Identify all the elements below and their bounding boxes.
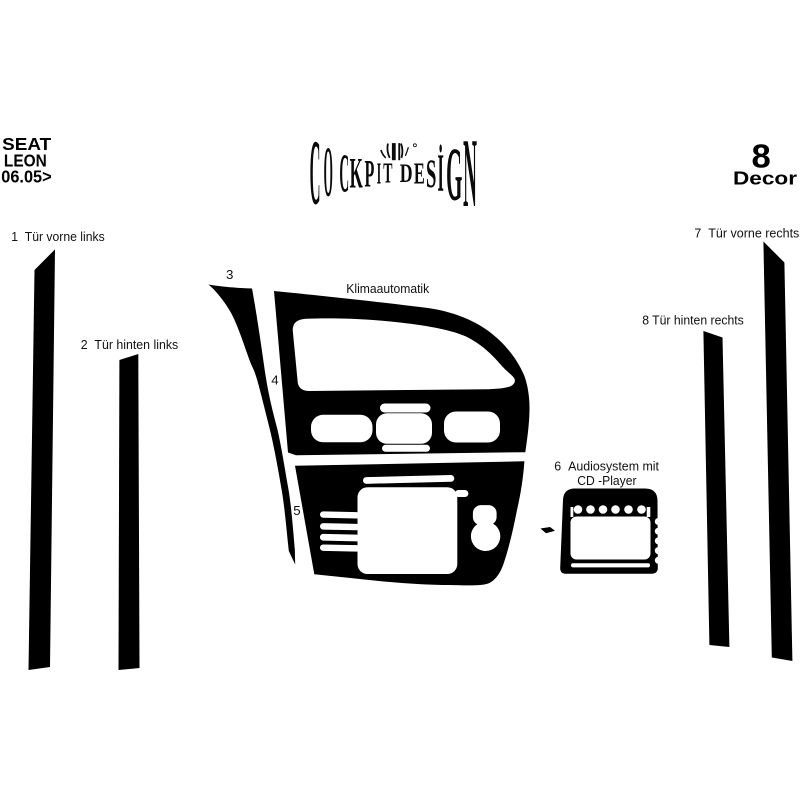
svg-text:S: S [426, 151, 436, 196]
svg-text:4: 4 [271, 373, 278, 388]
svg-text:6 Audiosystem mit: 6 Audiosystem mit [554, 459, 659, 474]
svg-text:Decor: Decor [733, 169, 797, 189]
svg-text:1 Tür vorne links: 1 Tür vorne links [11, 229, 105, 244]
svg-text:8 Tür hinten rechts: 8 Tür hinten rechts [642, 313, 744, 328]
svg-text:D: D [400, 158, 413, 187]
svg-text:O: O [324, 133, 333, 213]
svg-text:CD -Player: CD -Player [577, 473, 637, 488]
svg-text:7 Tür vorne rechts: 7 Tür vorne rechts [694, 225, 799, 240]
svg-text:K: K [350, 151, 363, 198]
svg-text:3: 3 [226, 267, 233, 282]
svg-text:G: G [446, 133, 462, 218]
svg-text:Klimaautomatik: Klimaautomatik [346, 281, 429, 296]
svg-text:5: 5 [293, 503, 300, 518]
svg-text:2 Tür hinten links: 2 Tür hinten links [81, 337, 179, 352]
svg-text:C: C [310, 123, 321, 225]
svg-text:P: P [364, 152, 374, 195]
svg-text:C: C [339, 143, 349, 203]
svg-text:N: N [463, 120, 477, 228]
svg-text:I: I [377, 157, 381, 192]
svg-text:T: T [383, 157, 392, 189]
svg-text:E: E [414, 157, 425, 191]
svg-text:06.05>: 06.05> [1, 167, 51, 187]
svg-text:İ: İ [438, 142, 444, 203]
